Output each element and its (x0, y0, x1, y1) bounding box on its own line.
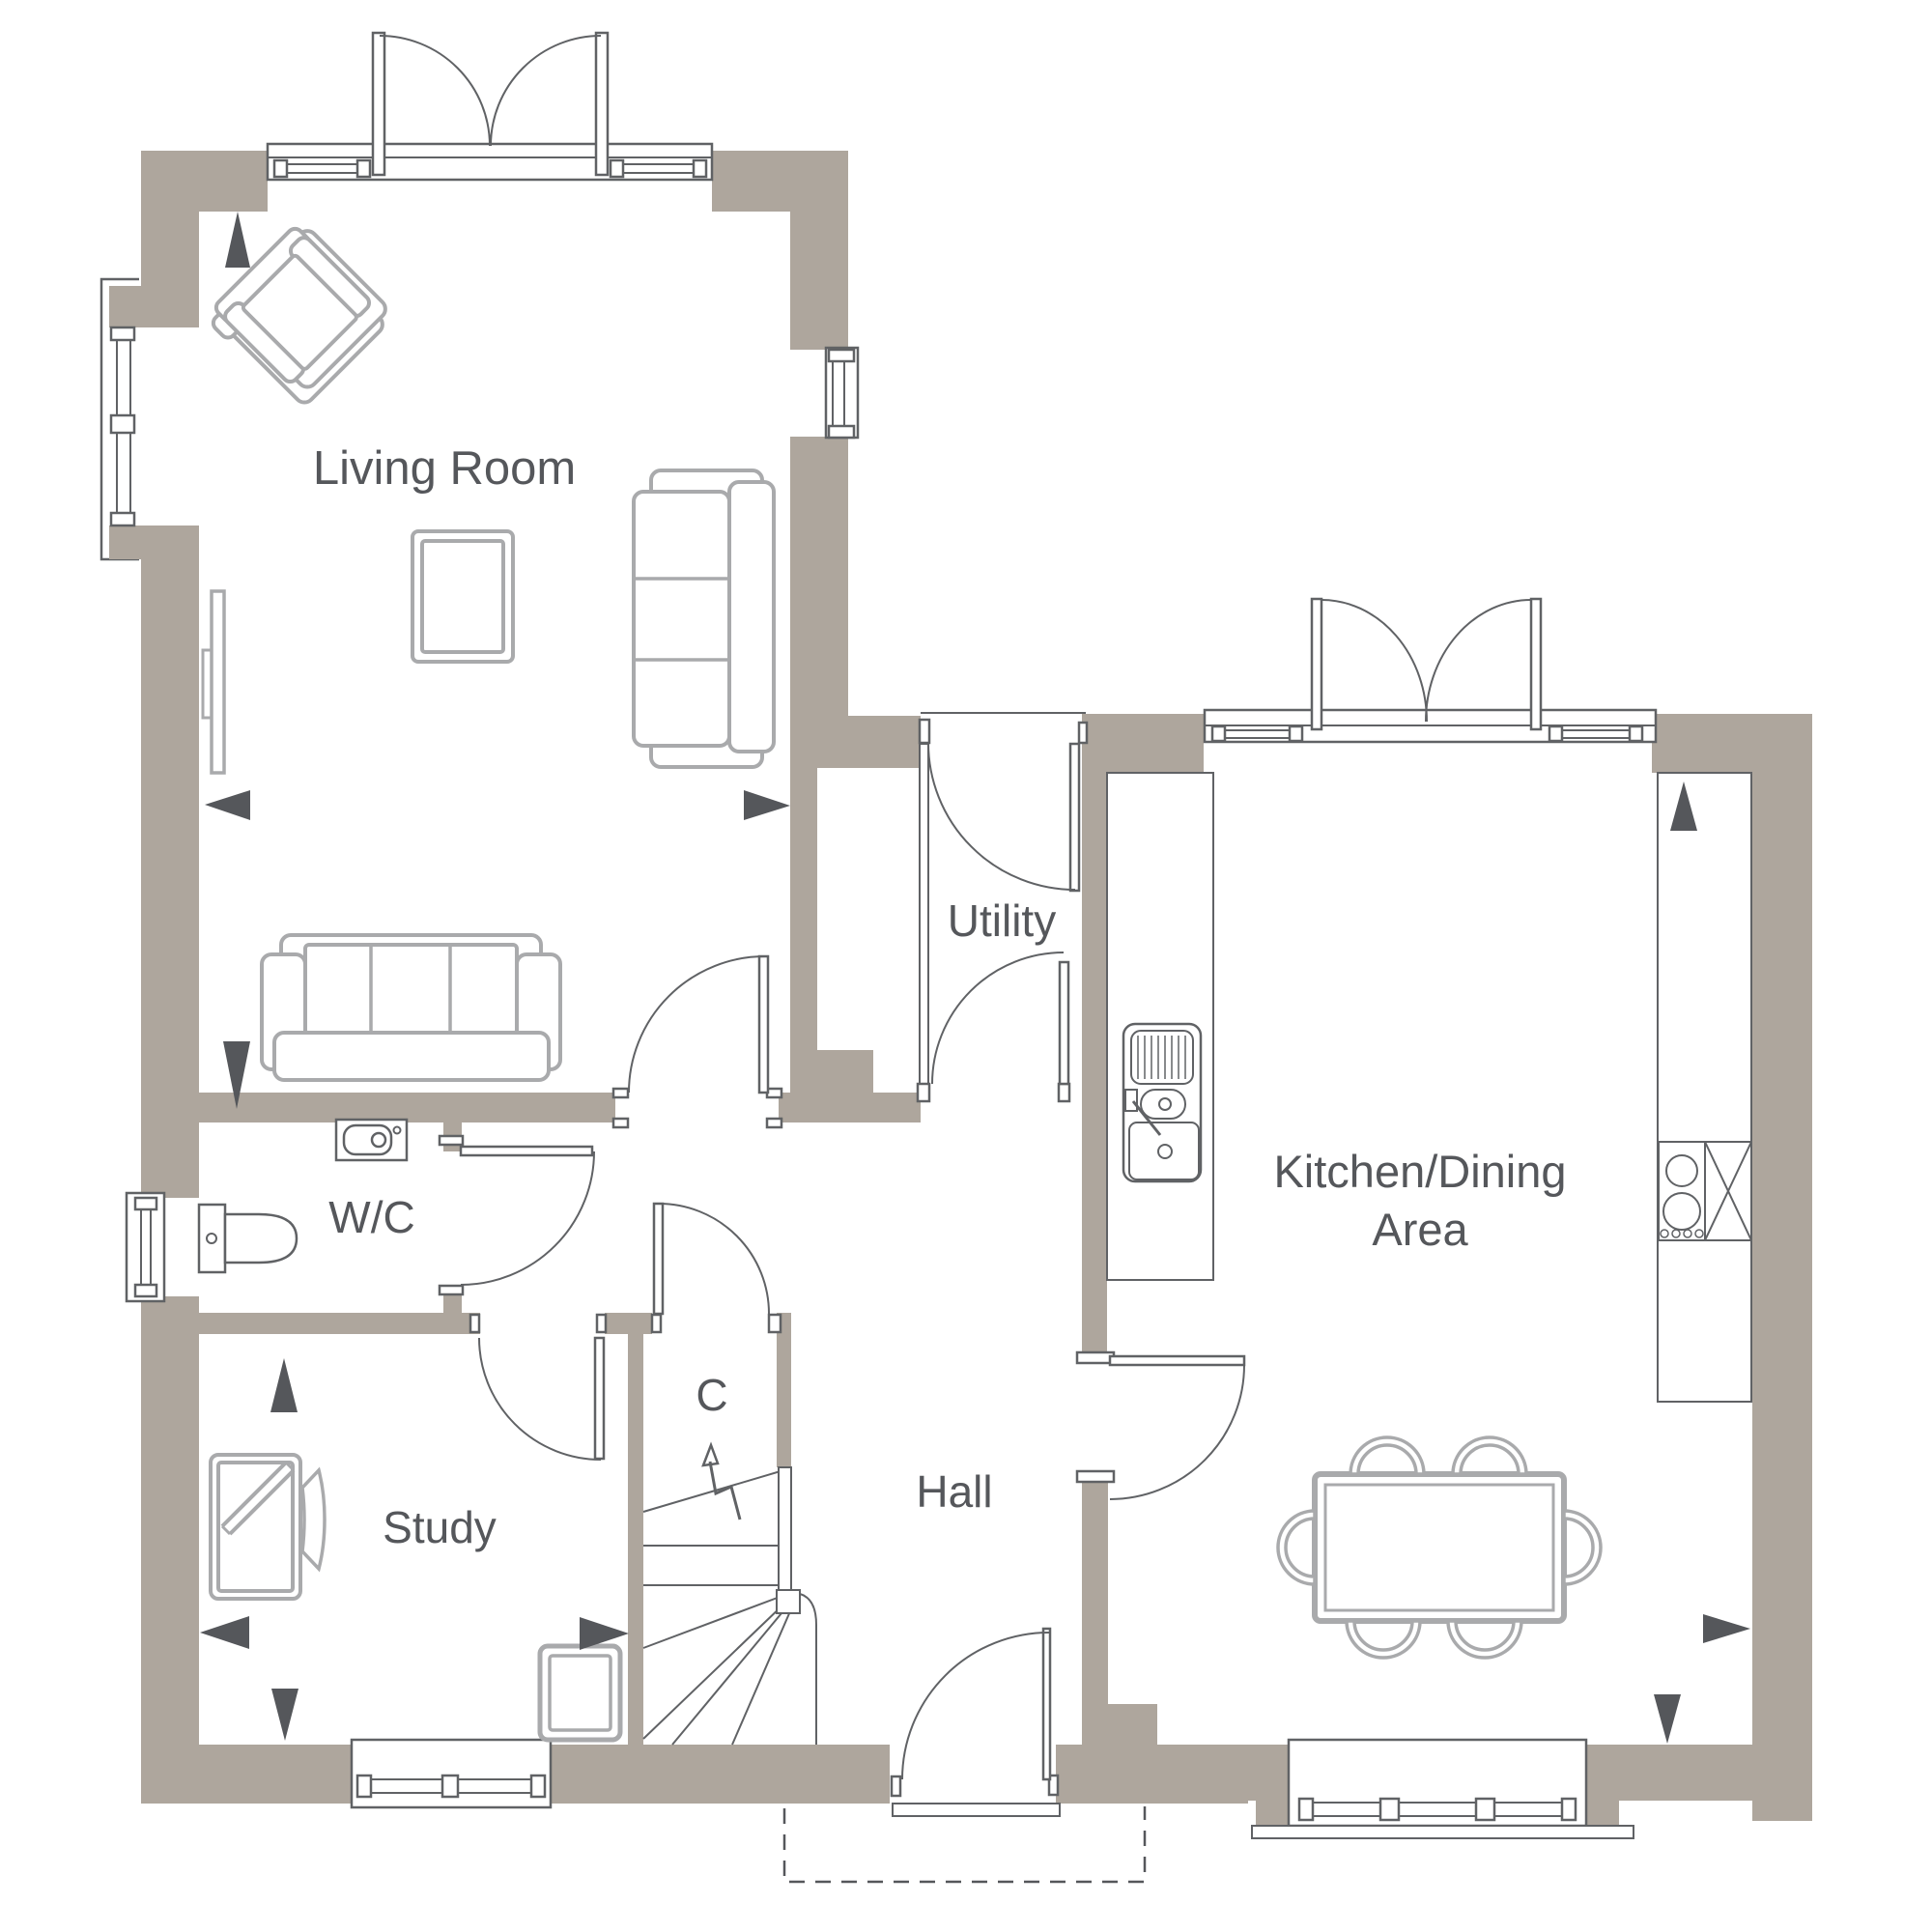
svg-text:C: C (696, 1370, 727, 1420)
svg-text:Area: Area (1372, 1204, 1468, 1255)
svg-text:Kitchen/Dining: Kitchen/Dining (1273, 1146, 1566, 1197)
svg-text:Hall: Hall (916, 1466, 992, 1517)
svg-text:W/C: W/C (328, 1192, 414, 1242)
svg-text:Utility: Utility (948, 895, 1056, 946)
svg-text:Study: Study (383, 1502, 497, 1552)
svg-text:Living Room: Living Room (313, 442, 576, 495)
